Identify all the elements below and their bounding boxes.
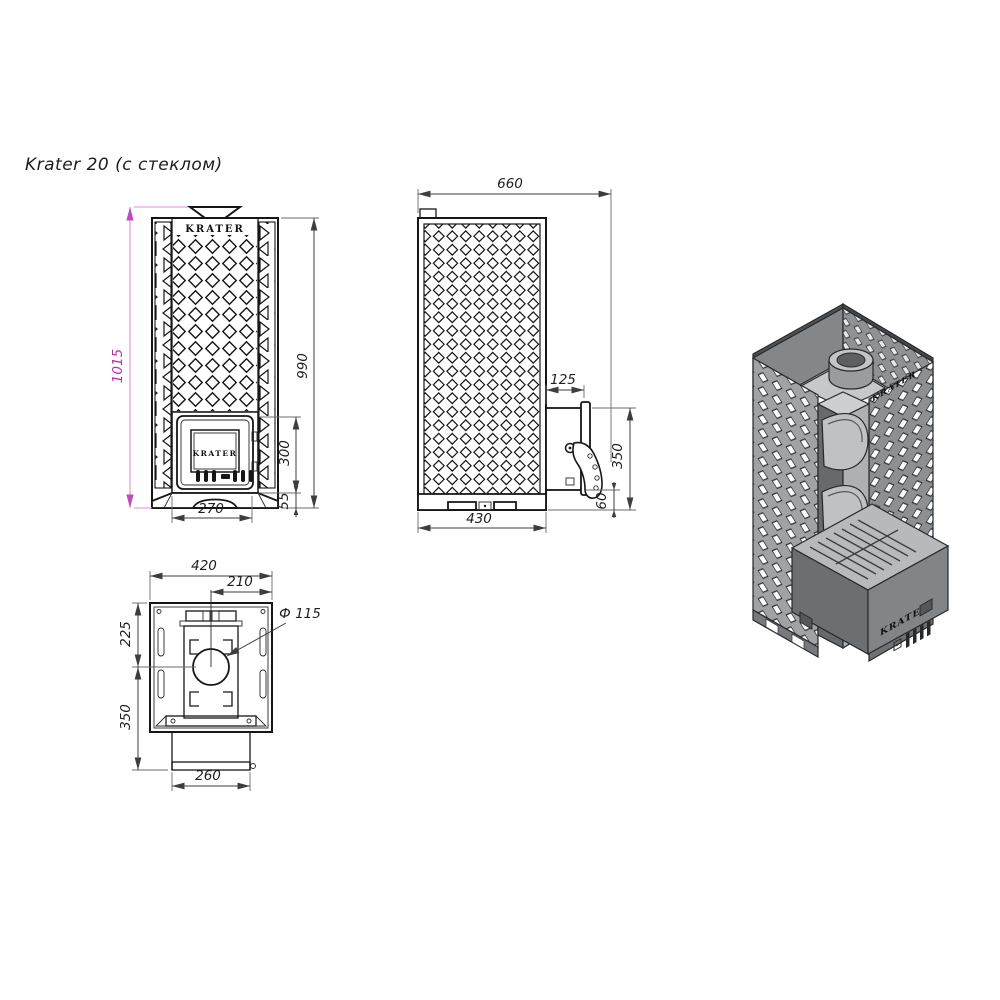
iso-chimney-collar	[829, 349, 873, 389]
dim-chimney-to-edge: 210	[227, 574, 253, 590]
top-dim-210: 210	[211, 574, 272, 592]
dim-tunnel-depth: 125	[550, 372, 576, 388]
dim-body-height: 990	[295, 353, 311, 379]
dim-door-width: 270	[198, 501, 224, 517]
dim-body-depth: 430	[466, 511, 492, 527]
side-foot-pin	[484, 505, 486, 507]
front-door-latch	[221, 474, 230, 479]
dim-door-height: 300	[277, 440, 293, 466]
top-dim-260: 260	[172, 768, 250, 791]
dim-tunnel-bottom-height: 60	[594, 492, 610, 509]
side-dim-125: 125	[546, 372, 584, 404]
front-brand-text: KRATER	[185, 224, 245, 235]
dim-tunnel-top-height: 350	[610, 443, 626, 469]
dim-tunnel-width: 260	[195, 768, 221, 784]
dim-total-depth: 660	[497, 176, 523, 192]
side-lattice	[424, 224, 540, 494]
dim-base-height: 55	[276, 492, 292, 509]
drawing-sheet: Krater 20 (с стеклом)	[0, 0, 1000, 1000]
iso-scallop-1	[822, 414, 868, 470]
front-chimney-collar	[190, 207, 240, 218]
dim-chimney-diameter: Ф 115	[279, 606, 321, 622]
front-right-lattice-strip	[259, 222, 275, 488]
front-center-lattice	[173, 235, 257, 411]
front-view: KRATER KRATER	[110, 207, 319, 523]
side-top-stub	[420, 209, 436, 218]
side-view: 660 125 350 60	[418, 176, 636, 533]
front-left-lattice-strip	[155, 222, 171, 488]
dim-tunnel-reach: 350	[118, 704, 134, 730]
side-dim-430: 430	[418, 511, 546, 533]
technical-drawing: KRATER KRATER	[0, 0, 1000, 1000]
front-door-brand-text: KRATER	[193, 449, 238, 458]
top-view: 420 210 225 350 260	[118, 558, 321, 791]
top-tunnel-pin	[251, 764, 256, 769]
front-dim-55: 55	[276, 484, 298, 517]
dim-total-height: 1015	[110, 349, 126, 383]
iso-view: KRATER	[753, 304, 948, 661]
dim-chimney-from-front: 225	[118, 621, 134, 647]
dim-body-width: 420	[191, 558, 217, 574]
